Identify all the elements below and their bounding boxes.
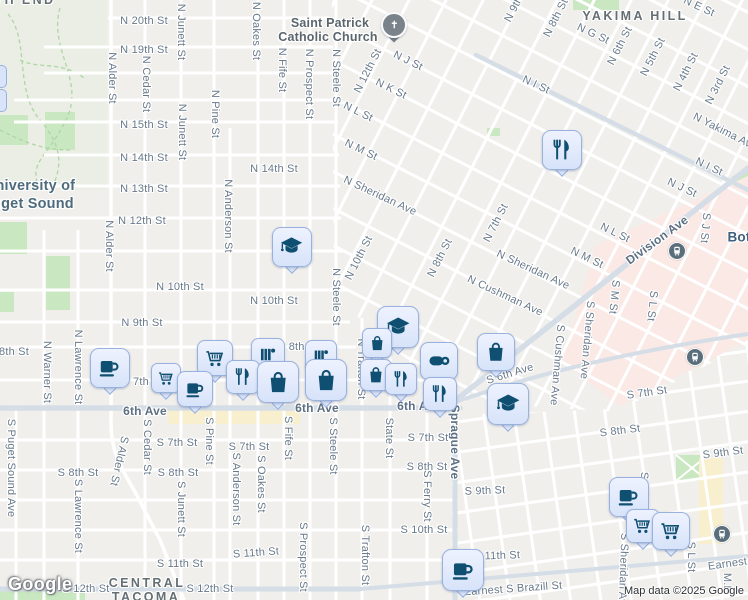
school-icon bbox=[279, 234, 304, 259]
mug-icon bbox=[427, 349, 451, 373]
cart-icon bbox=[157, 369, 175, 387]
partial-pin[interactable] bbox=[0, 89, 7, 112]
coffee-pin[interactable] bbox=[90, 348, 130, 388]
shopping-bag-pin[interactable] bbox=[362, 328, 392, 358]
church-pin[interactable] bbox=[381, 12, 407, 38]
shopping-bag-icon bbox=[366, 365, 386, 385]
shopping-bag-icon bbox=[265, 369, 291, 395]
shopping-bag-pin[interactable] bbox=[257, 361, 299, 403]
transit-vehicle-icon bbox=[716, 528, 728, 540]
cart-icon bbox=[204, 347, 226, 369]
partial-pin[interactable] bbox=[0, 65, 7, 88]
coffee-icon bbox=[184, 378, 206, 400]
restaurant-icon bbox=[429, 383, 450, 404]
school-pin[interactable] bbox=[272, 227, 312, 267]
coffee-icon bbox=[450, 557, 476, 583]
coffee-pin[interactable] bbox=[442, 549, 484, 591]
shopping-bag-pin[interactable] bbox=[477, 333, 515, 371]
church-icon bbox=[387, 18, 402, 33]
transit-vehicle-icon bbox=[671, 245, 683, 257]
restaurant-pin[interactable] bbox=[423, 377, 457, 411]
restaurant-icon bbox=[391, 369, 411, 389]
cart-icon bbox=[659, 519, 683, 543]
restaurant-icon bbox=[232, 366, 253, 387]
restaurant-pin[interactable] bbox=[385, 363, 417, 395]
transit-vehicle-icon bbox=[689, 351, 701, 363]
map-attribution: Map data ©2025 Google bbox=[624, 585, 744, 597]
cart-pin[interactable] bbox=[652, 512, 690, 550]
transit-stop-badge[interactable] bbox=[686, 348, 704, 366]
mug-pin[interactable] bbox=[420, 342, 458, 380]
school-icon bbox=[495, 391, 521, 417]
restaurant-pin[interactable] bbox=[226, 360, 260, 394]
coffee-icon bbox=[97, 355, 122, 380]
school-pin[interactable] bbox=[487, 383, 529, 425]
transit-stop-badge[interactable] bbox=[668, 242, 686, 260]
cart-icon bbox=[632, 515, 653, 536]
map-canvas[interactable]: TH ENDYAKIMA HILLCENTRALTACOMAUniversity… bbox=[0, 0, 748, 600]
shopping-bag-icon bbox=[368, 334, 386, 352]
coffee-pin[interactable] bbox=[177, 371, 213, 407]
google-logo[interactable]: Google bbox=[8, 574, 72, 595]
restaurant-pin[interactable] bbox=[542, 130, 582, 170]
transit-stop-badge[interactable] bbox=[713, 525, 731, 543]
coffee-icon bbox=[616, 484, 641, 509]
restaurant-icon bbox=[549, 137, 574, 162]
shopping-bag-icon bbox=[313, 367, 339, 393]
shopping-bag-icon bbox=[484, 340, 508, 364]
shopping-bag-pin[interactable] bbox=[305, 359, 347, 401]
